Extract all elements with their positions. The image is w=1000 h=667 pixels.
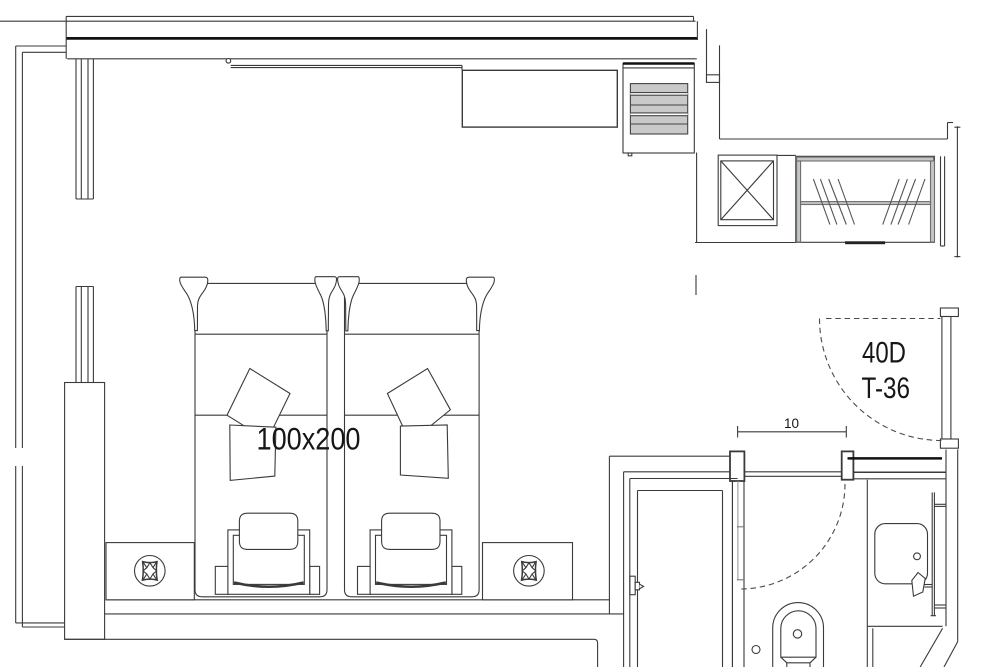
svg-text:40D: 40D (862, 337, 906, 370)
svg-text:T-36: T-36 (862, 372, 911, 405)
svg-text:100x200: 100x200 (257, 421, 361, 457)
svg-text:10: 10 (784, 416, 799, 431)
